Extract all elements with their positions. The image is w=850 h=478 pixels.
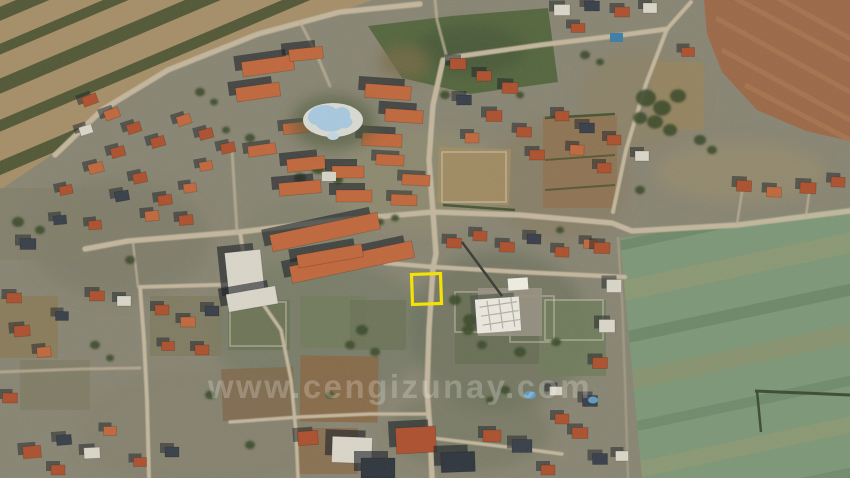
satellite-view: www.cengizunay.com xyxy=(0,0,850,478)
photo-grain-overlay xyxy=(0,0,850,478)
satellite-image: www.cengizunay.com xyxy=(0,0,850,478)
